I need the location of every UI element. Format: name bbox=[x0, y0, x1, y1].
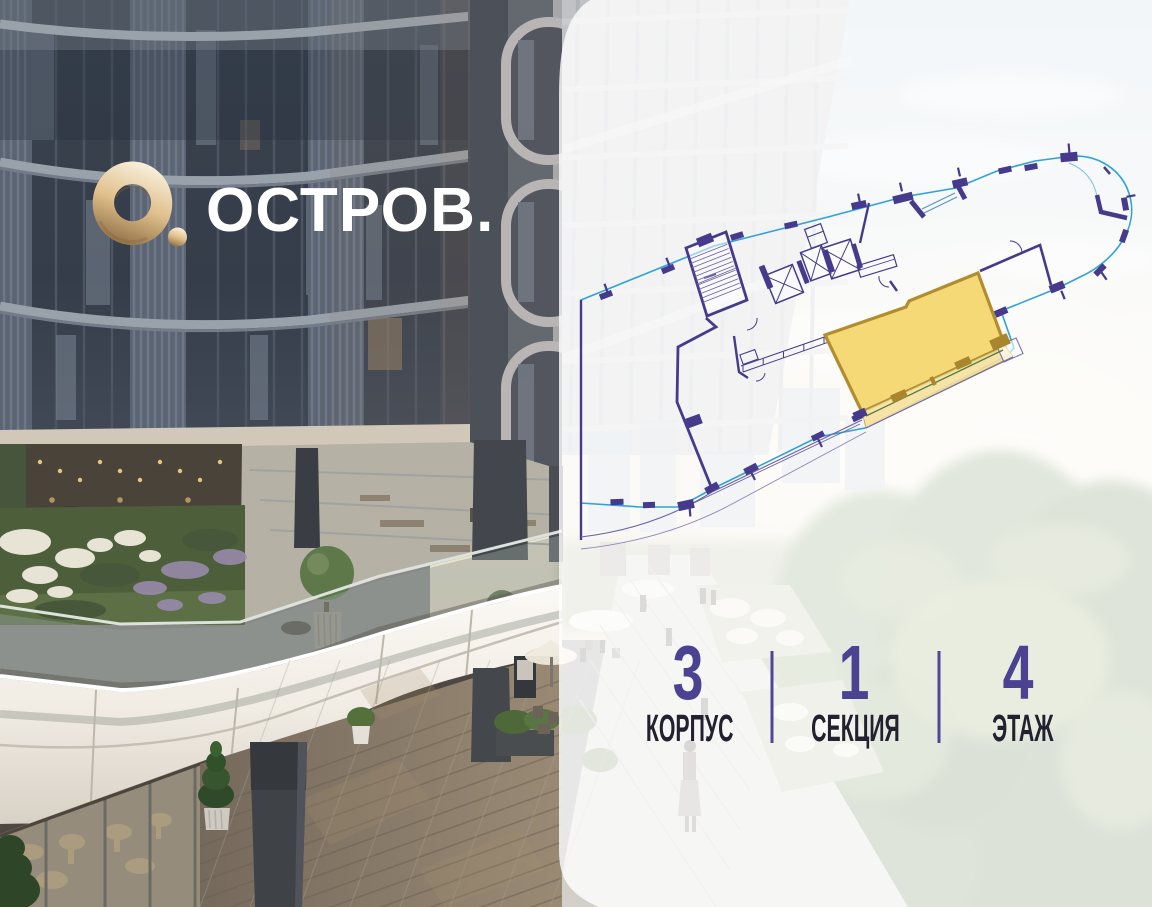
svg-text:3: 3 bbox=[673, 630, 704, 716]
svg-text:4: 4 bbox=[1003, 630, 1034, 716]
svg-text:СЕКЦИЯ: СЕКЦИЯ bbox=[811, 706, 900, 749]
svg-text:КОРПУС: КОРПУС bbox=[646, 706, 734, 749]
svg-text:ОСТРОВ.: ОСТРОВ. bbox=[206, 176, 495, 245]
svg-text:ЭТАЖ: ЭТАЖ bbox=[992, 706, 1053, 749]
svg-text:1: 1 bbox=[839, 630, 870, 716]
